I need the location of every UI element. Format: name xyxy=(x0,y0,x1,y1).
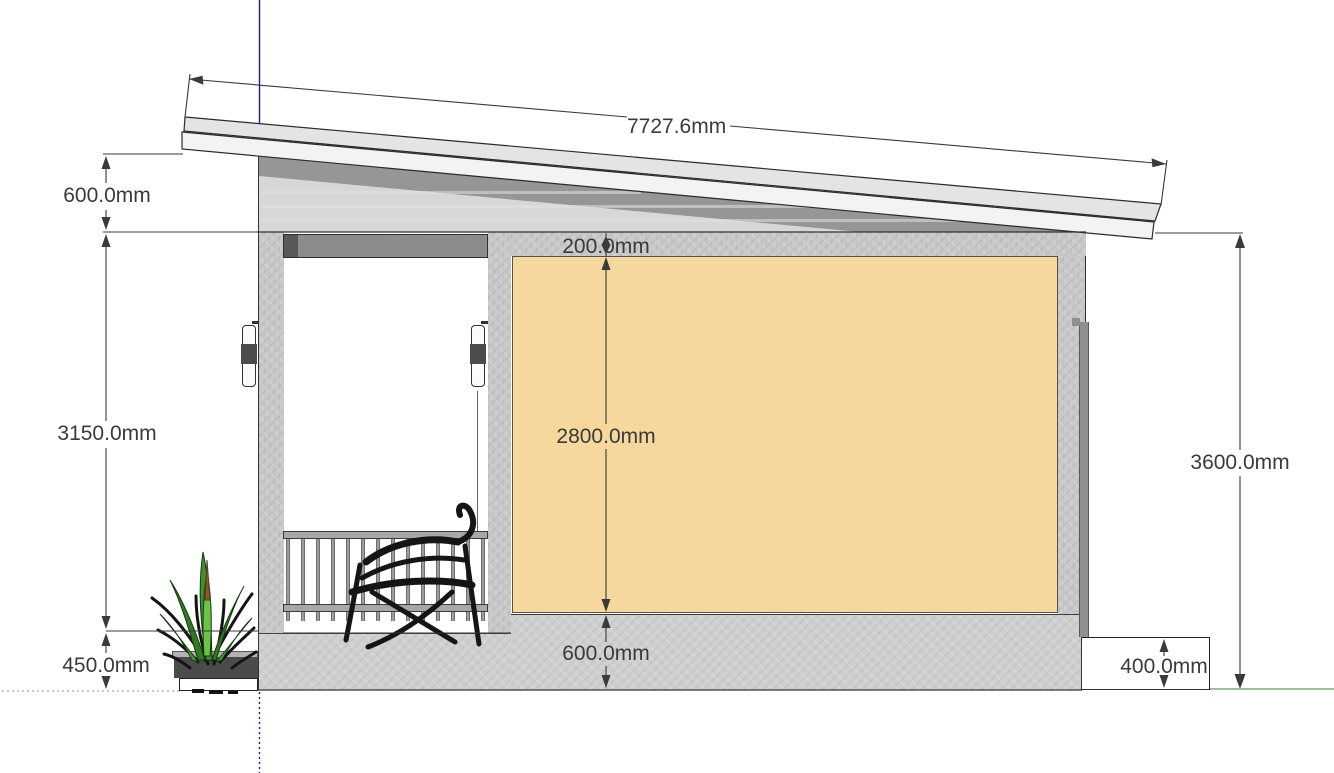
dim-plinth-height: 600.0mm xyxy=(560,643,652,665)
porch-header-beam xyxy=(283,234,488,258)
dim-right-footing-height: 400.0mm xyxy=(1118,656,1210,678)
wall-lamp-left-band xyxy=(241,344,257,364)
left-wall-column xyxy=(258,232,284,690)
plant-stem xyxy=(205,560,210,600)
porch-base-slab xyxy=(258,633,511,690)
dim-left-eave-height: 600.0mm xyxy=(61,185,153,207)
door-edge-line xyxy=(477,391,478,531)
elevation-drawing: 7727.6mm 600.0mm 3150.0mm 450.0mm 200.0m… xyxy=(0,0,1334,773)
railing-balusters xyxy=(286,539,486,605)
dim-top-band-height: 200.0mm xyxy=(560,236,652,258)
wall-lamp-right-bracket xyxy=(481,321,488,324)
siding-streak xyxy=(261,205,821,208)
porch-pier xyxy=(488,232,511,633)
roof-shadow-wedge xyxy=(259,154,1087,235)
planter-box xyxy=(179,678,258,691)
railing-bottom-rail xyxy=(283,604,488,612)
dim-right-total-height: 3600.0mm xyxy=(1188,452,1292,474)
dim-left-wall-height: 3150.0mm xyxy=(56,423,158,445)
railing-baluster-feet xyxy=(286,612,486,621)
railing-handrail xyxy=(283,531,488,539)
downpipe xyxy=(1079,322,1089,637)
dim-roof-slope-length: 7727.6mm xyxy=(627,116,725,138)
downpipe-bracket xyxy=(1072,318,1080,326)
dim-left-base-height: 450.0mm xyxy=(60,655,152,677)
wall-lamp-left-bracket xyxy=(252,321,259,324)
eave-band xyxy=(258,154,1087,235)
siding-streak xyxy=(261,191,641,194)
porch-header-end xyxy=(284,235,298,257)
wall-lamp-right-band xyxy=(470,344,486,364)
planter-soil xyxy=(174,657,258,678)
dim-wall-panel-height: 2800.0mm xyxy=(554,426,658,448)
siding-streak xyxy=(261,219,961,222)
